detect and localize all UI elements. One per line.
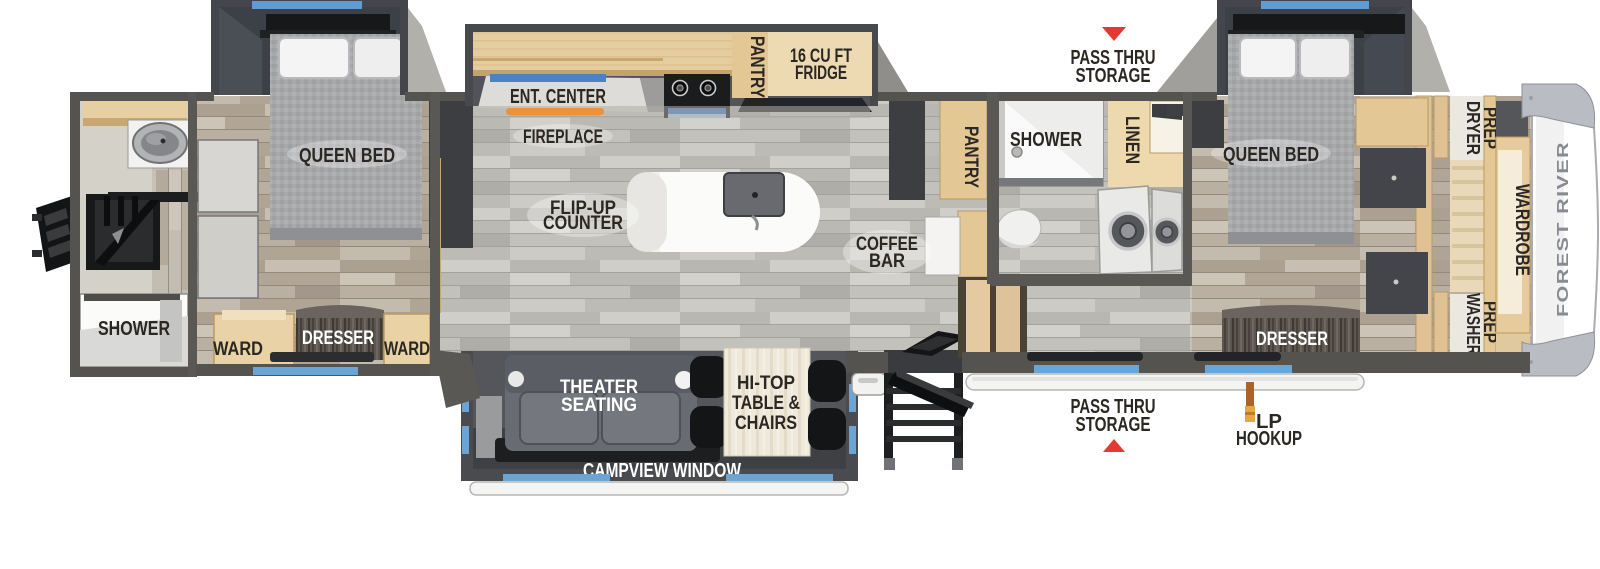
svg-text:WARD: WARD [384, 339, 430, 360]
svg-text:DRESSER: DRESSER [1256, 329, 1328, 350]
svg-text:QUEEN BED: QUEEN BED [299, 145, 395, 167]
svg-text:HOOKUP: HOOKUP [1236, 428, 1302, 450]
svg-text:DRYER: DRYER [1463, 101, 1483, 155]
svg-text:FOREST RIVER: FOREST RIVER [1555, 141, 1572, 317]
svg-text:DRESSER: DRESSER [302, 328, 374, 349]
svg-text:FIREPLACE: FIREPLACE [523, 127, 603, 148]
svg-text:HI-TOP: HI-TOP [737, 373, 795, 394]
svg-text:WARD: WARD [213, 339, 263, 360]
svg-text:LINEN: LINEN [1121, 116, 1142, 164]
svg-text:SHOWER: SHOWER [1010, 129, 1082, 151]
svg-text:FRIDGE: FRIDGE [795, 63, 847, 84]
svg-text:SHOWER: SHOWER [98, 318, 170, 340]
svg-text:PANTRY: PANTRY [746, 36, 767, 98]
svg-text:WASHER: WASHER [1463, 293, 1483, 355]
svg-text:QUEEN BED: QUEEN BED [1223, 144, 1319, 166]
svg-text:TABLE &: TABLE & [732, 393, 800, 414]
svg-text:SEATING: SEATING [561, 395, 637, 416]
svg-text:WARDROBE: WARDROBE [1511, 184, 1532, 276]
svg-text:STORAGE: STORAGE [1076, 414, 1151, 436]
svg-text:COUNTER: COUNTER [543, 213, 623, 234]
svg-text:ENT. CENTER: ENT. CENTER [510, 86, 606, 108]
svg-text:CHAIRS: CHAIRS [735, 413, 797, 434]
svg-text:STORAGE: STORAGE [1076, 65, 1151, 87]
svg-text:PANTRY: PANTRY [960, 126, 981, 188]
svg-text:BAR: BAR [869, 251, 905, 272]
